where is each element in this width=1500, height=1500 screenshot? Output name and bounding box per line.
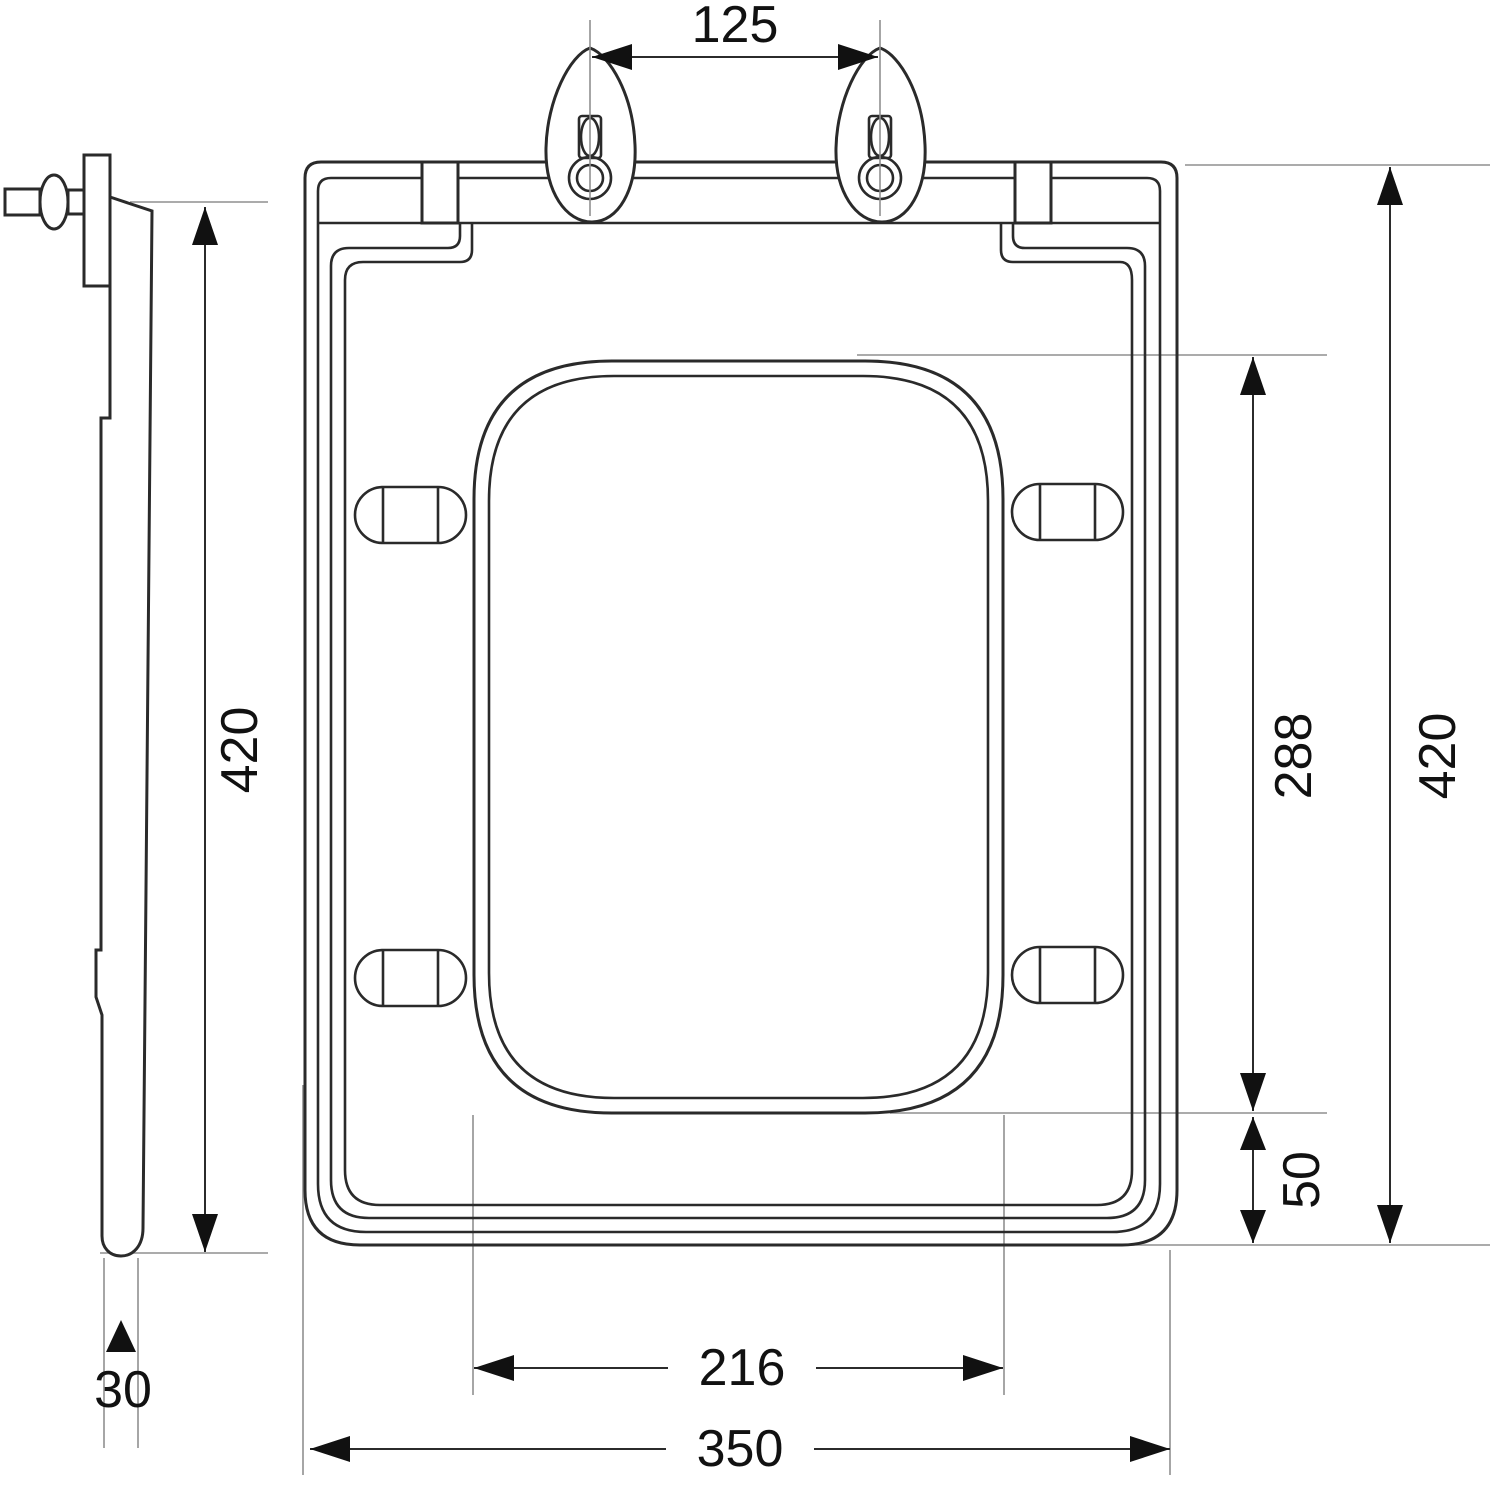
- dimension-350: 350: [310, 1420, 1170, 1478]
- seat-opening-inner: [489, 376, 988, 1098]
- dimension-label-opening-length: 288: [1265, 713, 1323, 800]
- hinge-pin-neck: [68, 190, 84, 214]
- front-view: [305, 20, 1177, 1245]
- technical-drawing-canvas: 125 420 30 420 288 50 216: [0, 0, 1500, 1500]
- dimension-216: 216: [474, 1339, 1003, 1397]
- dimension-label-thickness: 30: [94, 1361, 152, 1419]
- dimension-420-right: 420: [1377, 167, 1467, 1243]
- seat-ring-outer: [331, 224, 1145, 1218]
- dimension-420-left: 420: [192, 207, 269, 1252]
- side-view: [5, 155, 152, 1256]
- bumper-bottom-right: [1012, 947, 1123, 1003]
- dimension-50: 50: [1240, 1117, 1331, 1243]
- lid-outer-outline: [305, 162, 1177, 1245]
- toilet-seat-drawing: 125 420 30 420 288 50 216: [0, 0, 1500, 1500]
- hinge-pin: [5, 189, 40, 215]
- dimension-label-front-length: 420: [1409, 713, 1467, 800]
- seat-opening-outer: [474, 361, 1003, 1113]
- dimension-288: 288: [1240, 357, 1323, 1111]
- dimension-label-hinge-spacing: 125: [692, 0, 779, 54]
- dimension-label-bottom-offset: 50: [1273, 1151, 1331, 1209]
- seat-ring-chamfer: [345, 224, 1132, 1205]
- dimension-30: 30: [94, 1320, 152, 1419]
- hinge-pin-knob: [40, 175, 68, 229]
- hinge-tab-left: [422, 162, 458, 223]
- dimension-125: 125: [592, 0, 878, 70]
- bumper-bottom-left: [355, 950, 466, 1006]
- seat-side-profile: [96, 197, 152, 1256]
- dimension-label-side-length: 420: [211, 707, 269, 794]
- dimension-label-overall-width: 350: [697, 1420, 784, 1478]
- bumper-top-left: [355, 487, 466, 543]
- bumper-top-right: [1012, 484, 1123, 540]
- hinge-plate: [84, 155, 110, 286]
- dimension-label-opening-width: 216: [699, 1339, 786, 1397]
- hinge-tab-right: [1015, 162, 1051, 223]
- lid-inner-outline: [318, 178, 1160, 1232]
